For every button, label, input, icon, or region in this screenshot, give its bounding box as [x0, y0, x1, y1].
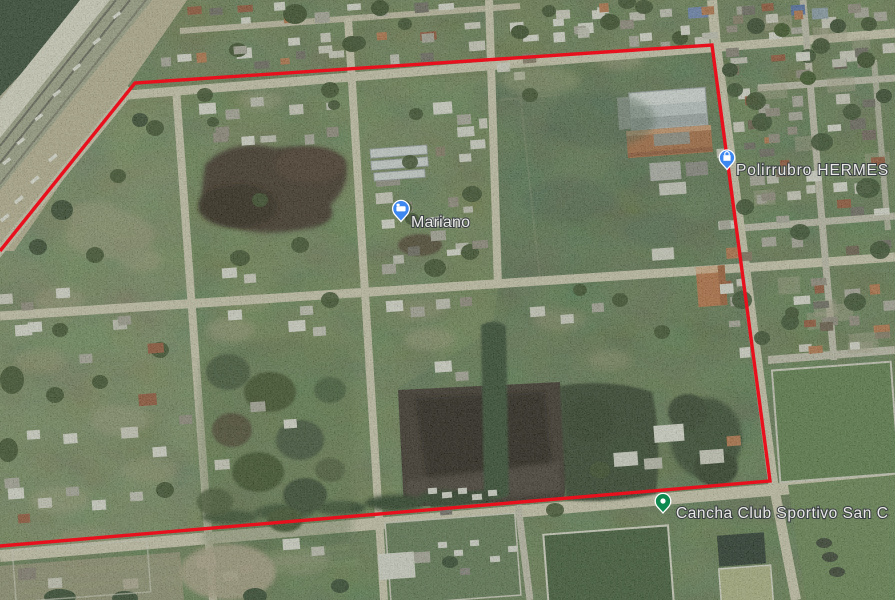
svg-text:Cancha Club Sportivo San C: Cancha Club Sportivo San C: [676, 505, 888, 522]
svg-text:Mariano: Mariano: [411, 214, 470, 231]
svg-text:Polirrubro HERMES: Polirrubro HERMES: [736, 162, 889, 179]
